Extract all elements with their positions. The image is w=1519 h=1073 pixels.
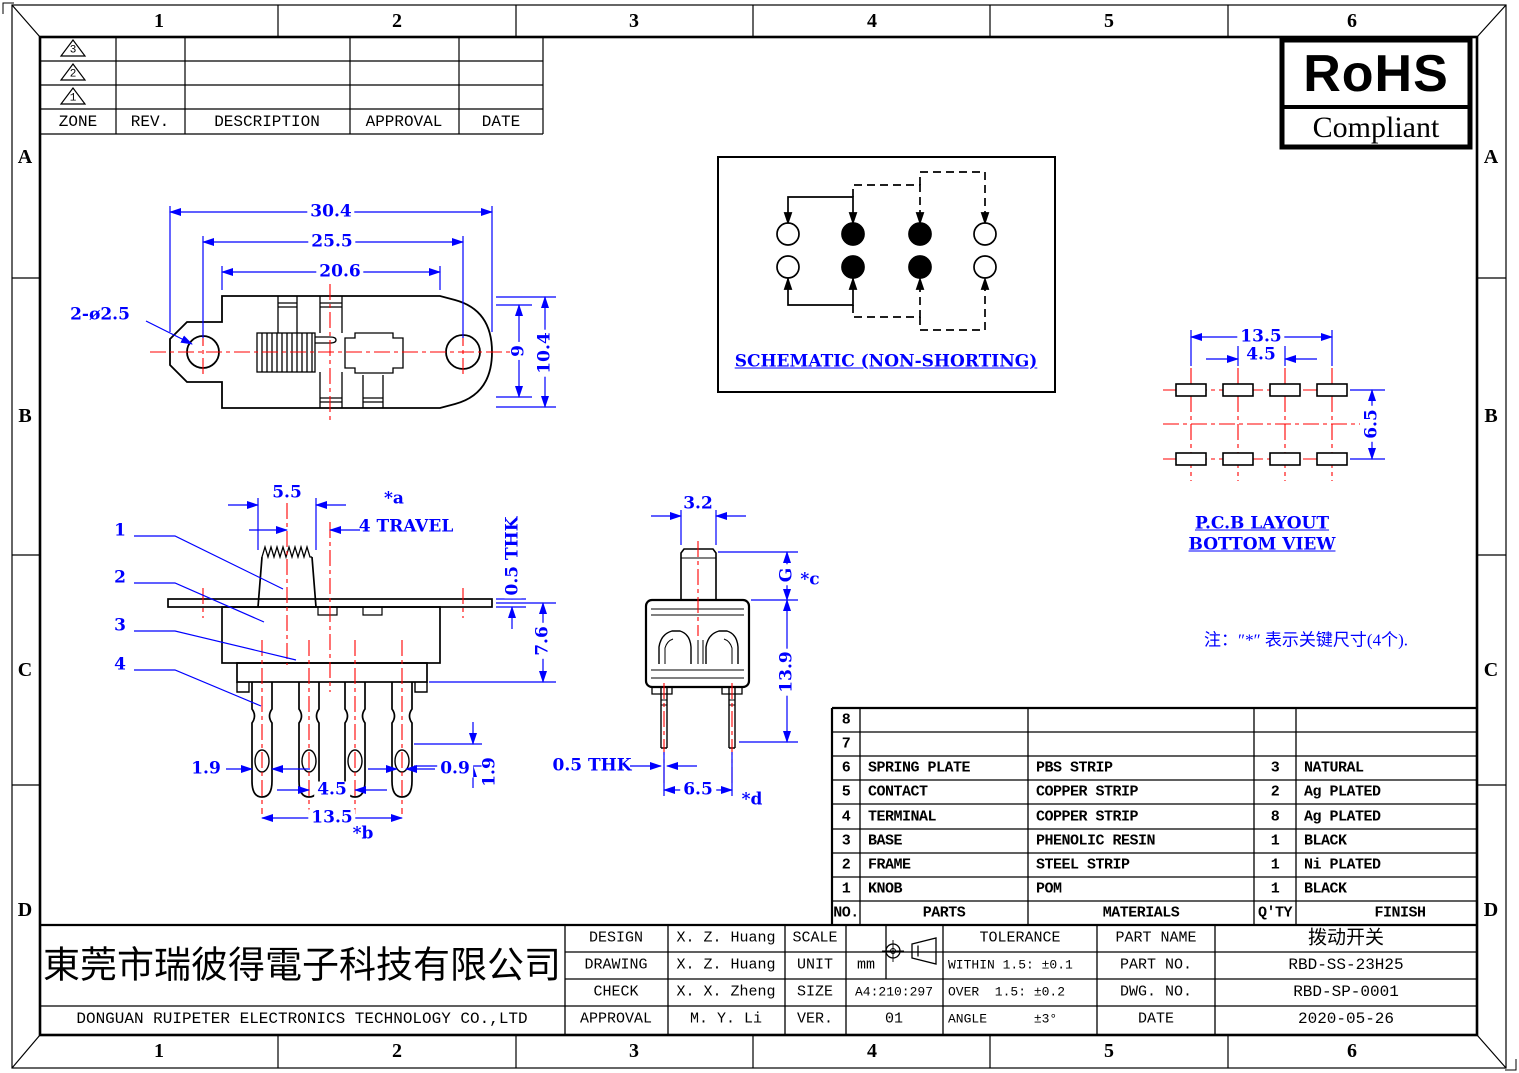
scale-label: SCALE: [792, 931, 837, 946]
zone-row-d-right: D: [1484, 900, 1498, 920]
pcb-dim-span: 13.5: [1237, 329, 1284, 346]
bom-header-no: NO.: [833, 906, 859, 921]
company-name-cn: 東莞市瑞彼得電子科技有限公司: [43, 948, 561, 985]
bom-row-no: 4: [842, 810, 851, 825]
frontview-key-b: *b: [353, 826, 374, 843]
sideview-dim-thickness: 0.5 THK: [553, 758, 632, 775]
part-name-value: 拨动开关: [1308, 929, 1384, 948]
frontview-callout-3: 3: [114, 618, 126, 635]
revision-col-description: DESCRIPTION: [214, 114, 320, 130]
pcb-dim-pitch: 4.5: [1243, 347, 1279, 364]
engineering-drawing-sheet: 1 2 3 4 5 6 1 2 3 4 5 6 A B C D A B C D …: [0, 0, 1519, 1073]
sideview-dim-knob: 3.2: [683, 496, 713, 513]
bom-row-parts: BASE: [868, 834, 902, 849]
approval-value: M. Y. Li: [690, 1012, 762, 1027]
bom-row-qty: 1: [1271, 834, 1280, 849]
revision-col-approval: APPROVAL: [366, 114, 443, 130]
frontview-dim-body-height: 7.6: [535, 623, 552, 659]
tolerance-over: OVER 1.5: ±0.2: [948, 986, 1065, 999]
rohs-logo: RoHS: [1303, 48, 1449, 100]
bom-row-no: 3: [842, 834, 851, 849]
rohs-compliant-label: Compliant: [1313, 113, 1440, 143]
frontview-dim-pitch: 4.5: [314, 782, 350, 799]
bom-row-qty: 1: [1271, 858, 1280, 873]
bom-row-qty: 2: [1271, 785, 1280, 800]
date-label: DATE: [1138, 1012, 1174, 1027]
date-value: 2020-05-26: [1298, 1011, 1394, 1027]
zone-col-1-top: 1: [154, 11, 164, 31]
company-name-en: DONGUAN RUIPETER ELECTRONICS TECHNOLOGY …: [76, 1011, 527, 1027]
dwg-no-value: RBD-SP-0001: [1293, 984, 1399, 1000]
part-no-label: PART NO.: [1120, 958, 1192, 973]
key-dimension-note: 注：″*″ 表示关键尺寸(4个).: [1204, 632, 1408, 649]
dwg-no-label: DWG. NO.: [1120, 985, 1192, 1000]
sideview-dim-g: G: [779, 565, 796, 586]
bom-row-finish: Ag PLATED: [1304, 785, 1381, 800]
bom-row-materials: PBS STRIP: [1036, 761, 1113, 776]
size-label: SIZE: [797, 985, 833, 1000]
design-label: DESIGN: [589, 931, 643, 946]
topview-dim-overall-width: 30.4: [307, 204, 354, 221]
bom-row-qty: 8: [1271, 810, 1280, 825]
zone-row-b-right: B: [1484, 406, 1497, 426]
sideview-dim-pitch: 6.5: [680, 782, 716, 799]
zone-col-2-bottom: 2: [392, 1041, 402, 1061]
zone-row-b-left: B: [18, 406, 31, 426]
pcb-dim-row: 6.5: [1364, 406, 1381, 442]
bom-row-no: 5: [842, 785, 851, 800]
frontview-callout-4: 4: [114, 657, 126, 674]
sideview-dim-height: 13.9: [779, 648, 796, 695]
bom-row-no: 8: [842, 713, 851, 728]
size-value: A4:210:297: [855, 986, 933, 999]
topview-dim-mounting-holes: 2-ø2.5: [70, 307, 130, 324]
zone-col-6-top: 6: [1347, 11, 1357, 31]
revision-col-rev: REV.: [131, 114, 169, 130]
zone-row-c-left: C: [18, 660, 32, 680]
check-value: X. X. Zheng: [676, 985, 775, 1000]
topview-dim-body-width: 20.6: [316, 264, 363, 281]
bom-row-no: 6: [842, 761, 851, 776]
zone-col-5-top: 5: [1104, 11, 1114, 31]
revision-marker-1: 1: [70, 94, 77, 105]
topview-dim-hole-span: 25.5: [308, 234, 355, 251]
zone-col-4-top: 4: [867, 11, 877, 31]
sideview-key-c: *c: [800, 572, 819, 589]
topview-dim-height-inner: 9: [511, 342, 528, 360]
topview-dim-height-overall: 10.4: [537, 329, 554, 376]
zone-col-2-top: 2: [392, 11, 402, 31]
frontview-callout-1: 1: [114, 523, 126, 540]
bom-header-parts: PARTS: [923, 906, 966, 921]
revision-col-zone: ZONE: [59, 114, 97, 130]
bom-row-no: 2: [842, 858, 851, 873]
zone-col-1-bottom: 1: [154, 1041, 164, 1061]
bom-row-finish: BLACK: [1304, 834, 1347, 849]
frontview-dim-slot: 0.9: [437, 761, 473, 778]
design-value: X. Z. Huang: [676, 931, 775, 946]
bom-row-no: 1: [842, 882, 851, 897]
schematic-title: SCHEMATIC (NON-SHORTING): [735, 354, 1038, 371]
zone-row-a-left: A: [18, 147, 32, 167]
frontview-dim-plate-thickness: 0.5 THK: [505, 514, 522, 599]
ver-value: 01: [885, 1012, 903, 1027]
check-label: CHECK: [593, 985, 638, 1000]
tolerance-within: WITHIN 1.5: ±0.1: [948, 959, 1073, 972]
sideview-key-d: *d: [742, 792, 763, 809]
side-view: [630, 510, 798, 796]
bom-header-finish: FINISH: [1374, 906, 1425, 921]
bom-row-parts: TERMINAL: [868, 810, 936, 825]
zone-col-3-top: 3: [629, 11, 639, 31]
unit-value: mm: [857, 958, 875, 973]
bom-row-no: 7: [842, 737, 851, 752]
bom-row-parts: SPRING PLATE: [868, 761, 970, 776]
bom-row-finish: Ni PLATED: [1304, 858, 1381, 873]
tolerance-angle: ANGLE ±3°: [948, 1013, 1057, 1026]
revision-marker-3: 3: [70, 46, 77, 57]
drawing-label: DRAWING: [584, 958, 647, 973]
bom-row-parts: CONTACT: [868, 785, 928, 800]
bom-row-finish: NATURAL: [1304, 761, 1364, 776]
bom-row-materials: STEEL STRIP: [1036, 858, 1130, 873]
bom-row-materials: COPPER STRIP: [1036, 785, 1138, 800]
zone-row-c-right: C: [1484, 660, 1498, 680]
part-name-label: PART NAME: [1115, 931, 1196, 946]
bom-row-finish: Ag PLATED: [1304, 810, 1381, 825]
frontview-dim-knob-width: 5.5: [272, 485, 302, 502]
pcb-title-line1: P.C.B LAYOUT: [1195, 516, 1329, 533]
frontview-dim-terminal-width: 1.9: [188, 761, 224, 778]
zone-col-6-bottom: 6: [1347, 1041, 1357, 1061]
drawing-value: X. Z. Huang: [676, 958, 775, 973]
zone-row-a-right: A: [1484, 147, 1498, 167]
bom-row-parts: FRAME: [868, 858, 911, 873]
tolerance-title: TOLERANCE: [979, 931, 1060, 946]
zone-col-3-bottom: 3: [629, 1041, 639, 1061]
zone-col-4-bottom: 4: [867, 1041, 877, 1061]
bom-row-materials: COPPER STRIP: [1036, 810, 1138, 825]
bom-row-qty: 3: [1271, 761, 1280, 776]
frontview-callout-2: 2: [114, 570, 126, 587]
frontview-key-a: *a: [384, 491, 404, 508]
zone-row-d-left: D: [18, 900, 32, 920]
revision-col-date: DATE: [482, 114, 520, 130]
bom-header-materials: MATERIALS: [1103, 906, 1180, 921]
revision-marker-2: 2: [70, 70, 77, 81]
bom-row-qty: 1: [1271, 882, 1280, 897]
bom-row-finish: BLACK: [1304, 882, 1347, 897]
frontview-dim-span: 13.5: [308, 810, 355, 827]
frontview-dim-travel: 4 TRAVEL: [359, 519, 454, 536]
bom-row-materials: PHENOLIC RESIN: [1036, 834, 1155, 849]
projection-angle-symbol: [882, 938, 936, 964]
approval-label: APPROVAL: [580, 1012, 652, 1027]
zone-col-5-bottom: 5: [1104, 1041, 1114, 1061]
pcb-title-line2: BOTTOM VIEW: [1189, 537, 1336, 554]
bom-row-parts: KNOB: [868, 882, 902, 897]
part-no-value: RBD-SS-23H25: [1288, 957, 1403, 973]
unit-label: UNIT: [797, 958, 833, 973]
ver-label: VER.: [797, 1012, 833, 1027]
frontview-dim-hole-height: 1.9: [482, 754, 499, 790]
bom-header-qty: Q'TY: [1258, 906, 1292, 921]
bom-row-materials: POM: [1036, 882, 1062, 897]
